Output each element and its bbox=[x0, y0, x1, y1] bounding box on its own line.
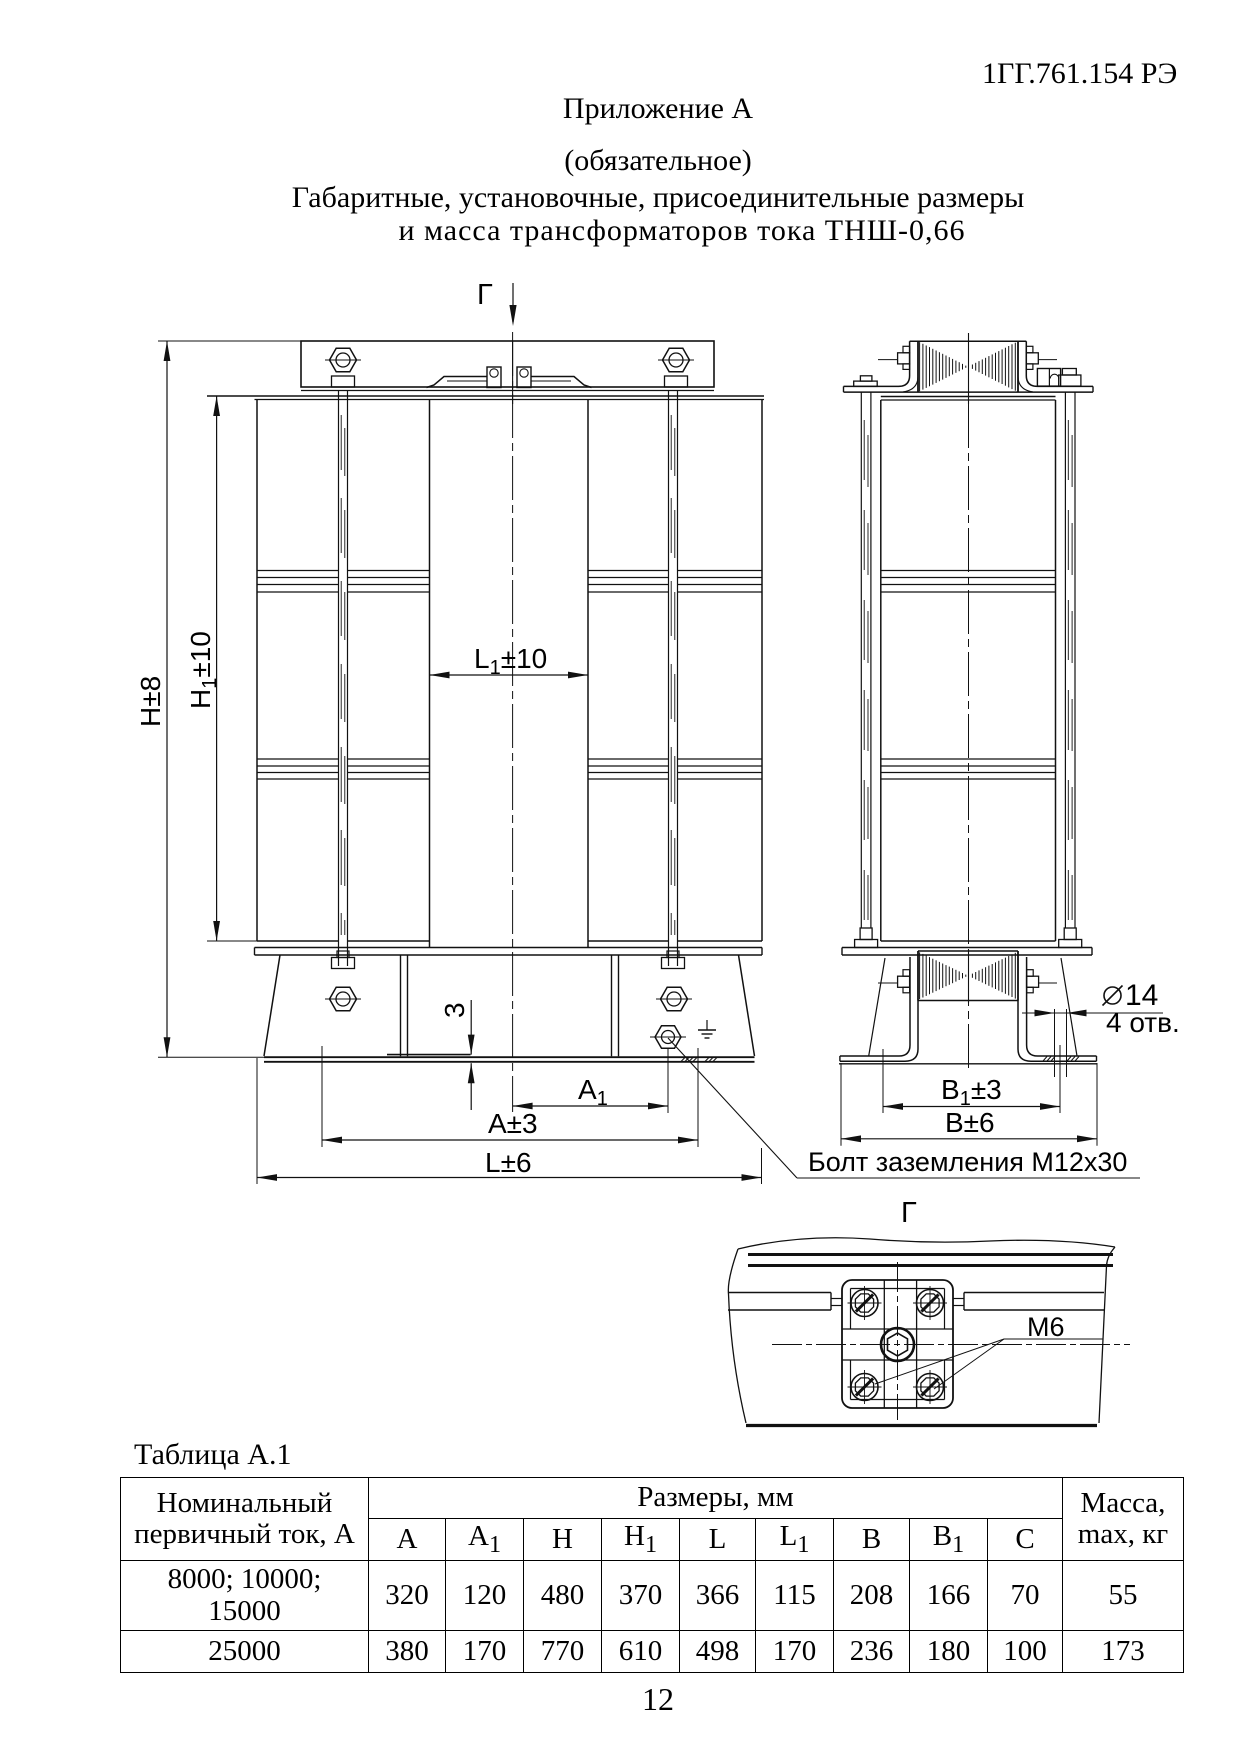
svg-text:3: 3 bbox=[439, 1002, 470, 1018]
svg-text:4 отв.: 4 отв. bbox=[1106, 1007, 1180, 1038]
svg-text:В±6: В±6 bbox=[945, 1107, 995, 1138]
svg-text:М6: М6 bbox=[1027, 1312, 1065, 1342]
svg-text:Г: Г bbox=[901, 1197, 917, 1229]
svg-text:В1±3: В1±3 bbox=[941, 1074, 1002, 1110]
svg-text:H±8: H±8 bbox=[135, 676, 166, 727]
svg-text:Болт заземления М12х30: Болт заземления М12х30 bbox=[808, 1147, 1127, 1177]
svg-text:А±3: А±3 bbox=[488, 1108, 538, 1139]
svg-text:А1: А1 bbox=[578, 1074, 608, 1110]
svg-text:L±6: L±6 bbox=[485, 1147, 532, 1178]
svg-text:Г: Г bbox=[477, 279, 493, 311]
svg-text:L1±10: L1±10 bbox=[474, 643, 547, 679]
svg-text:H1±10: H1±10 bbox=[185, 631, 221, 709]
